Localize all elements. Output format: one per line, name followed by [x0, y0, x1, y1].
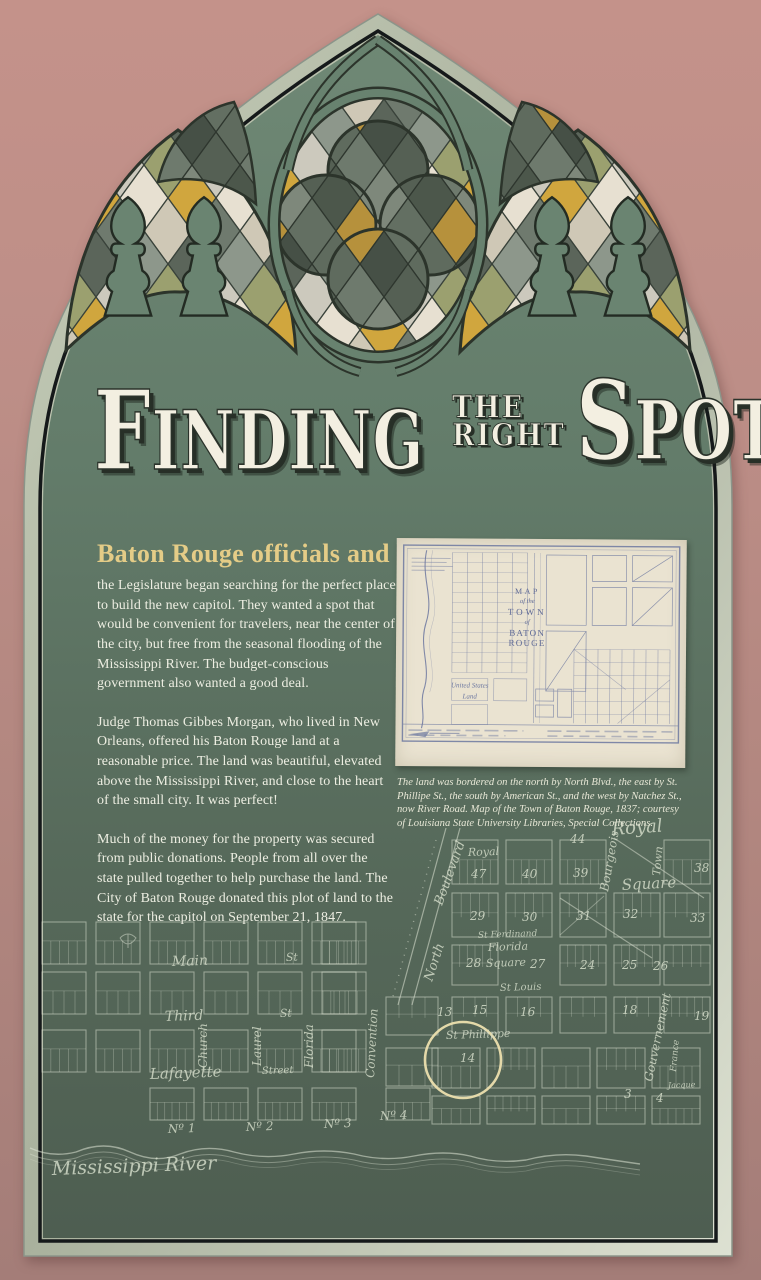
- svg-text:24: 24: [579, 958, 595, 972]
- svg-text:18: 18: [622, 1003, 638, 1017]
- svg-text:25: 25: [621, 958, 637, 972]
- inset-map-caption: The land was bordered on the north by No…: [397, 776, 685, 830]
- title-word-spot: SPOT: [576, 356, 761, 485]
- svg-text:Nº 1: Nº 1: [167, 1121, 196, 1136]
- exhibit-photo: MainStThirdStLafayetteStreetChurchLaurel…: [0, 0, 761, 1280]
- svg-text:Street: Street: [262, 1065, 295, 1077]
- inset-map-card: MAPof theTOWNofBATON ROUGE United States…: [395, 538, 687, 768]
- svg-text:Square: Square: [621, 873, 677, 894]
- inset-title-line: MAP: [492, 587, 562, 596]
- svg-text:14: 14: [460, 1051, 475, 1065]
- svg-text:15: 15: [472, 1003, 487, 1017]
- svg-text:29: 29: [469, 909, 486, 923]
- title-word-right: RIGHT: [452, 420, 566, 452]
- svg-text:Church: Church: [196, 1023, 210, 1068]
- inset-title-line: of the: [492, 598, 562, 605]
- article-lead: Baton Rouge officials and: [97, 540, 396, 567]
- svg-text:26: 26: [652, 959, 669, 973]
- svg-text:St: St: [280, 1007, 293, 1020]
- svg-text:44: 44: [569, 832, 585, 846]
- svg-text:St Ferdinand: St Ferdinand: [478, 929, 538, 941]
- article-paragraph-1: the Legislature began searching for the …: [97, 576, 396, 694]
- svg-text:47: 47: [470, 867, 487, 881]
- svg-text:Town: Town: [650, 846, 666, 877]
- svg-text:28: 28: [465, 956, 482, 970]
- title-word-finding: FINDING: [94, 366, 424, 495]
- svg-text:30: 30: [522, 910, 538, 924]
- svg-text:Nº 2: Nº 2: [245, 1119, 274, 1134]
- svg-text:Third: Third: [165, 1008, 204, 1025]
- article-paragraph-2: Judge Thomas Gibbes Morgan, who lived in…: [97, 713, 396, 811]
- svg-text:16: 16: [520, 1005, 536, 1019]
- inset-legend: [412, 558, 453, 570]
- svg-text:32: 32: [623, 907, 638, 921]
- inset-arrow: [409, 731, 459, 737]
- svg-text:Royal: Royal: [467, 845, 500, 859]
- article-text: Baton Rouge officials and the Legislatur…: [97, 540, 396, 947]
- svg-text:St Louis: St Louis: [500, 982, 542, 994]
- svg-text:3: 3: [624, 1087, 632, 1101]
- svg-text:38: 38: [694, 861, 710, 875]
- svg-text:Laurel: Laurel: [250, 1026, 264, 1067]
- svg-text:40: 40: [521, 867, 538, 881]
- svg-text:27: 27: [529, 957, 546, 971]
- inset-title-line: of: [492, 619, 562, 626]
- svg-text:13: 13: [437, 1005, 453, 1019]
- inset-land-label: United States Land: [444, 680, 496, 701]
- svg-text:19: 19: [694, 1009, 710, 1023]
- svg-text:Florida: Florida: [487, 940, 529, 954]
- svg-text:Jacque: Jacque: [666, 1080, 696, 1090]
- inset-title-line: BATON ROUGE: [492, 628, 562, 648]
- svg-text:4: 4: [655, 1091, 664, 1105]
- svg-text:Lafayette: Lafayette: [149, 1063, 222, 1084]
- inset-title-line: TOWN: [492, 607, 562, 617]
- inset-map-drawing: [395, 538, 687, 768]
- svg-text:St Phillippe: St Phillippe: [446, 1027, 512, 1042]
- title-mid-words: THE RIGHT: [452, 392, 566, 447]
- svg-text:St: St: [286, 951, 299, 964]
- article-paragraph-3: Much of the money for the property was s…: [97, 830, 396, 928]
- inset-river: [421, 550, 435, 728]
- inset-map-title: MAPof theTOWNofBATON ROUGE: [492, 585, 562, 650]
- svg-text:31: 31: [576, 909, 591, 923]
- svg-text:39: 39: [573, 866, 589, 880]
- svg-text:Main: Main: [171, 953, 209, 970]
- panel-title: FINDING THE RIGHT SPOT: [94, 366, 672, 464]
- svg-text:Nº 3: Nº 3: [323, 1116, 352, 1131]
- svg-text:33: 33: [690, 911, 706, 925]
- svg-text:Nº 4: Nº 4: [379, 1108, 408, 1123]
- svg-text:Florida: Florida: [302, 1024, 316, 1069]
- svg-text:Square: Square: [486, 956, 527, 970]
